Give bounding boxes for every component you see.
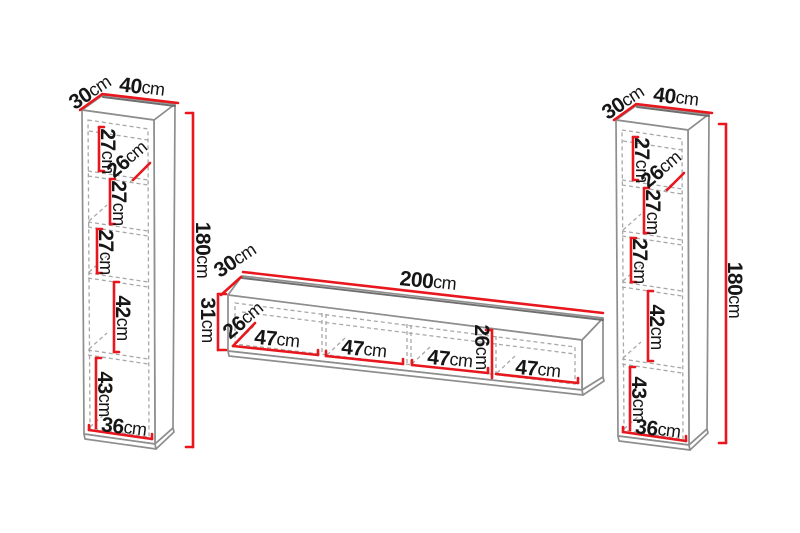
left-height-label: 180cm	[192, 222, 215, 279]
left-shelf2-label: 27cm	[108, 180, 131, 225]
left-shelf5-label: 43cm	[94, 371, 117, 416]
left-cabinet-side-face	[154, 104, 175, 444]
left-shelf3-label: 27cm	[95, 229, 118, 274]
left-cabinet: 30cm 40cm 180cm 27cm 26cm 27cm 27cm 42cm…	[65, 70, 215, 449]
furniture-dimension-diagram: 30cm 40cm 180cm 27cm 26cm 27cm 27cm 42cm…	[0, 0, 800, 533]
right-shelf3-label: 27cm	[629, 238, 652, 283]
diagram-canvas: 30cm 40cm 180cm 27cm 26cm 27cm 27cm 42cm…	[0, 0, 800, 533]
left-shelf4-label: 42cm	[112, 295, 135, 340]
tv-height-label: 31cm	[197, 297, 220, 342]
tv-stand: 30cm 200cm 31cm 26cm 47cm 47cm 47cm 26cm…	[197, 238, 605, 395]
tv-depth-label: 30cm	[210, 238, 261, 282]
tv-inner-height-label: 26cm	[471, 324, 494, 369]
left-height-line	[186, 113, 193, 447]
right-cabinet: 30cm 40cm 180cm 27cm 26cm 27cm 27cm 42cm…	[598, 80, 747, 450]
right-shelf4-label: 42cm	[646, 304, 669, 349]
right-shelf2-label: 27cm	[642, 189, 665, 234]
right-height-label: 180cm	[724, 262, 747, 319]
right-cabinet-side-face	[688, 114, 709, 445]
